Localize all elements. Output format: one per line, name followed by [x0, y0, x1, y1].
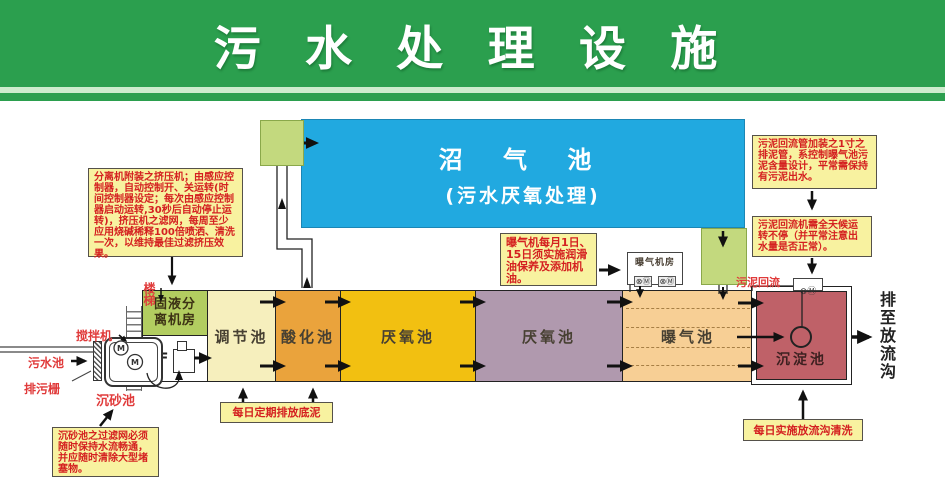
clarifier-icon [791, 327, 811, 347]
mixer-motor-letter: M [131, 358, 139, 367]
up-arrow-icon [303, 277, 311, 288]
mixer-label: 搅拌机 [76, 327, 112, 344]
up-arrow-icon [278, 198, 286, 209]
note-aerator-maintenance: 曝气机每月1日、15日须实施润滑油保养及添加机油。 [500, 233, 597, 286]
flow-arrow [100, 411, 112, 426]
note-sludge-pipe: 污泥回流管加装之1寸之排泥管，系控制曝气池污泥含量设计，平常需保持有污泥出水。 [752, 135, 877, 189]
up-arrow-icon [175, 370, 183, 380]
grit-chamber-label: 沉砂池 [96, 390, 135, 409]
outflow-label: 排至放流沟 [874, 291, 898, 387]
note-ditch-cleaning: 每日实施放流沟清洗 [743, 419, 863, 441]
note-sludge-pump: 污泥回流机需全天候运转不停（并平常注意出水量是否正常）。 [752, 216, 872, 257]
sludge-return-label: 污泥回流 [736, 274, 780, 290]
trash-screen-label: 排污栅 [24, 380, 60, 397]
note-bottom-sludge: 每日定期排放底泥 [220, 402, 333, 423]
poster: 污 水 处 理 设 施 沼 气 池 (污水厌氧处理) 固液分离机房 2F 调节池… [0, 0, 945, 491]
pointer-arrow [119, 335, 126, 341]
note-grit-filter: 沉砂池之过滤网必须随时保持水流畅通，并应随时清除大型堵塞物。 [52, 427, 159, 477]
sewage-pool-label: 污水池 [28, 354, 64, 371]
mixer-motor-letter: M [117, 344, 125, 353]
note-press-machine: 分离机附装之挤压机；由感应控制器，自动控制开、关运转(时间控制器设定；每次由感应… [88, 168, 243, 257]
